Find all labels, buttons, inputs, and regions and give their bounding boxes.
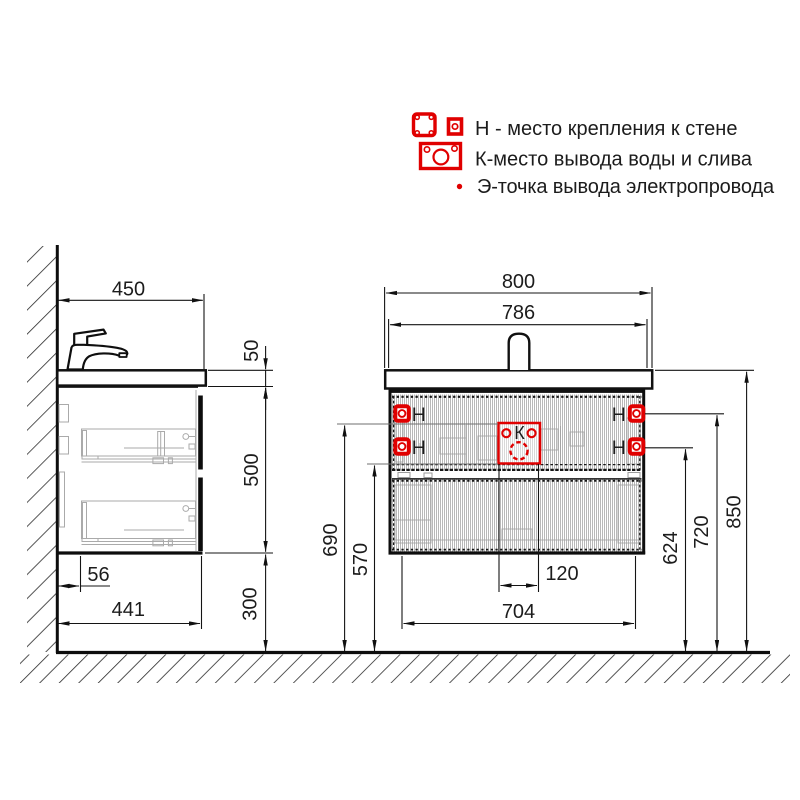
svg-text:800: 800 bbox=[502, 271, 535, 293]
svg-text:50: 50 bbox=[241, 340, 263, 362]
svg-text:624: 624 bbox=[660, 531, 682, 564]
svg-text:Н: Н bbox=[612, 437, 626, 459]
svg-text:786: 786 bbox=[502, 302, 535, 324]
svg-text:56: 56 bbox=[87, 564, 109, 586]
svg-text:К: К bbox=[514, 423, 525, 443]
svg-text:570: 570 bbox=[350, 543, 372, 576]
svg-text:Н - место крепления к стене: Н - место крепления к стене bbox=[475, 118, 737, 140]
svg-text:120: 120 bbox=[545, 563, 578, 585]
svg-text:Э-точка вывода электропровода: Э-точка вывода электропровода bbox=[477, 176, 775, 198]
svg-text:Н: Н bbox=[412, 404, 426, 426]
svg-text:Н: Н bbox=[612, 404, 626, 426]
svg-text:850: 850 bbox=[723, 495, 745, 528]
svg-text:720: 720 bbox=[691, 515, 713, 548]
svg-text:450: 450 bbox=[112, 279, 145, 301]
svg-text:690: 690 bbox=[320, 523, 342, 556]
svg-text:300: 300 bbox=[240, 587, 262, 620]
svg-text:К-место вывода воды и слива: К-место вывода воды и слива bbox=[475, 149, 753, 171]
svg-text:Н: Н bbox=[412, 437, 426, 459]
svg-text:500: 500 bbox=[241, 453, 263, 486]
svg-text:704: 704 bbox=[502, 601, 535, 623]
svg-text:441: 441 bbox=[112, 599, 145, 621]
